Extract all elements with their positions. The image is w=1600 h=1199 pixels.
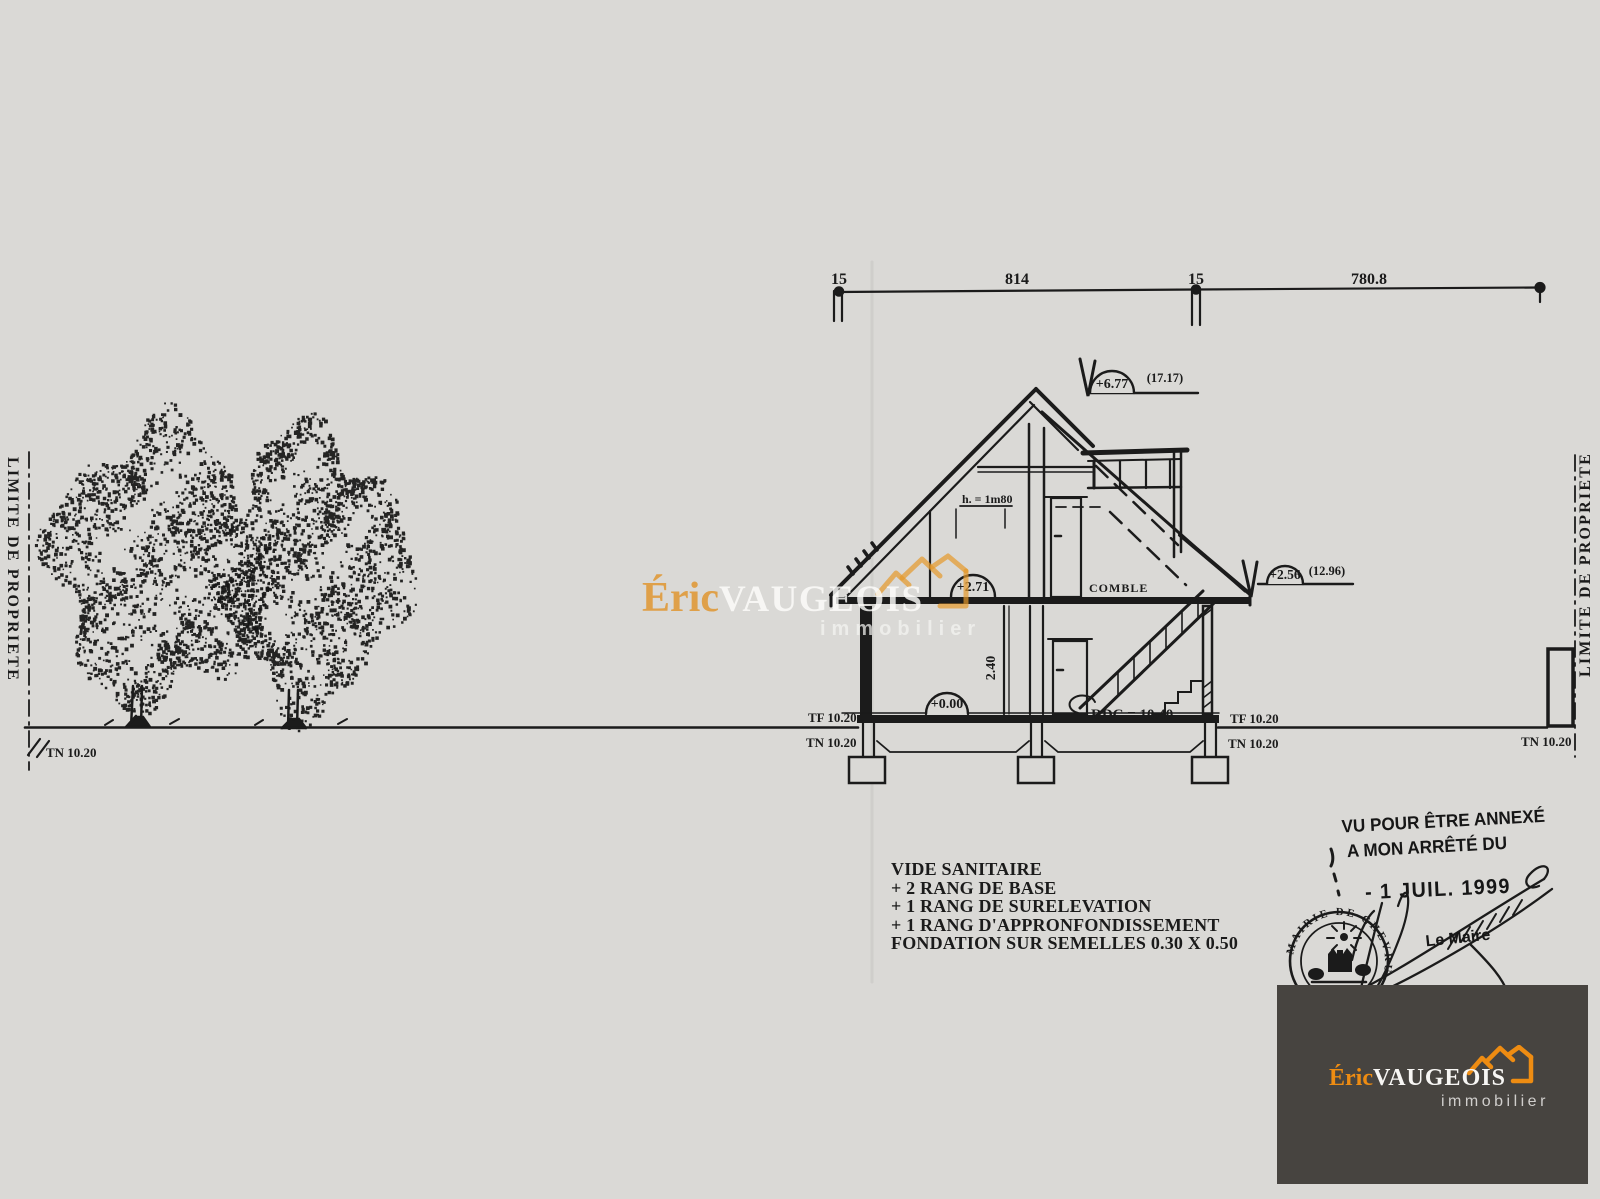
- staircase: [1070, 591, 1214, 716]
- chimney-ground: [1030, 606, 1043, 714]
- dim-814: 814: [1005, 271, 1029, 288]
- note-line: VIDE SANITAIRE: [891, 860, 1238, 879]
- property-limit-label-left: LIMITE DE PROPRIETE: [3, 457, 21, 682]
- section-drawing-page: 15 814 15 780.8 +6.77 (17.17) +2.56 (12.…: [0, 0, 1600, 1199]
- watermark-text: ÉricVAUGEOIS: [642, 574, 924, 622]
- trees: [35, 402, 417, 732]
- boundary-wall-section: [1548, 649, 1573, 726]
- agency-logo-box: ÉricVAUGEOIS immobilier: [1277, 985, 1588, 1184]
- footing-left: [849, 757, 885, 783]
- tn-far-left: TN 10.20: [46, 745, 97, 760]
- ink-marks: [1331, 849, 1339, 895]
- watermark-tagline: immobilier: [820, 618, 981, 641]
- elev-eave: +2.56: [1269, 567, 1301, 582]
- property-limit-label-right: LIMITE DE PROPRIETE: [1577, 452, 1595, 677]
- dimension-line: [834, 283, 1545, 325]
- elev-ground: +0.00: [931, 697, 963, 712]
- chimney-attic: [1029, 424, 1044, 597]
- logo-last: VAUGEOIS: [1373, 1065, 1506, 1091]
- tf-right: TF 10.20: [1230, 711, 1279, 726]
- headroom-label: h. = 1m80: [962, 492, 1013, 506]
- elev-ridge-abs: (17.17): [1147, 371, 1183, 385]
- tree-foliage: [35, 402, 285, 715]
- tree-foliage: [201, 412, 417, 732]
- footing-center: [1018, 757, 1054, 783]
- note-line: + 2 RANG DE BASE: [891, 879, 1238, 898]
- note-line: FONDATION SUR SEMELLES 0.30 X 0.50: [891, 934, 1238, 953]
- comble-label: COMBLE: [1089, 581, 1148, 595]
- elev-ridge: +6.77: [1096, 377, 1128, 392]
- attic-door: [1051, 498, 1081, 597]
- tn-far-right: TN 10.20: [1521, 734, 1572, 749]
- tn-left: TN 10.20: [806, 735, 857, 750]
- foundation: [842, 713, 1228, 783]
- logo-tagline: immobilier: [1441, 1093, 1549, 1111]
- dim-15-mid: 15: [1188, 271, 1204, 288]
- rdc-label: RDC = 10.40: [1091, 707, 1173, 723]
- watermark-last: VAUGEOIS: [719, 579, 924, 620]
- ceiling-height-label: 2.40: [984, 656, 999, 681]
- note-line: + 1 RANG D'APPRONFONDISSEMENT: [891, 916, 1238, 935]
- dim-15-left: 15: [831, 271, 847, 288]
- tn-right: TN 10.20: [1228, 736, 1279, 751]
- elev-eave-abs: (12.96): [1309, 564, 1345, 578]
- footing-right: [1192, 757, 1228, 783]
- construction-notes: VIDE SANITAIRE + 2 RANG DE BASE + 1 RANG…: [891, 860, 1238, 953]
- dim-780: 780.8: [1351, 271, 1387, 288]
- logo-first: Éric: [1329, 1065, 1373, 1091]
- note-line: + 1 RANG DE SURELEVATION: [891, 897, 1238, 916]
- logo-text: ÉricVAUGEOIS: [1329, 1065, 1506, 1092]
- watermark-first: Éric: [642, 575, 719, 621]
- balusters: [1118, 598, 1198, 696]
- tf-left: TF 10.20: [808, 710, 857, 725]
